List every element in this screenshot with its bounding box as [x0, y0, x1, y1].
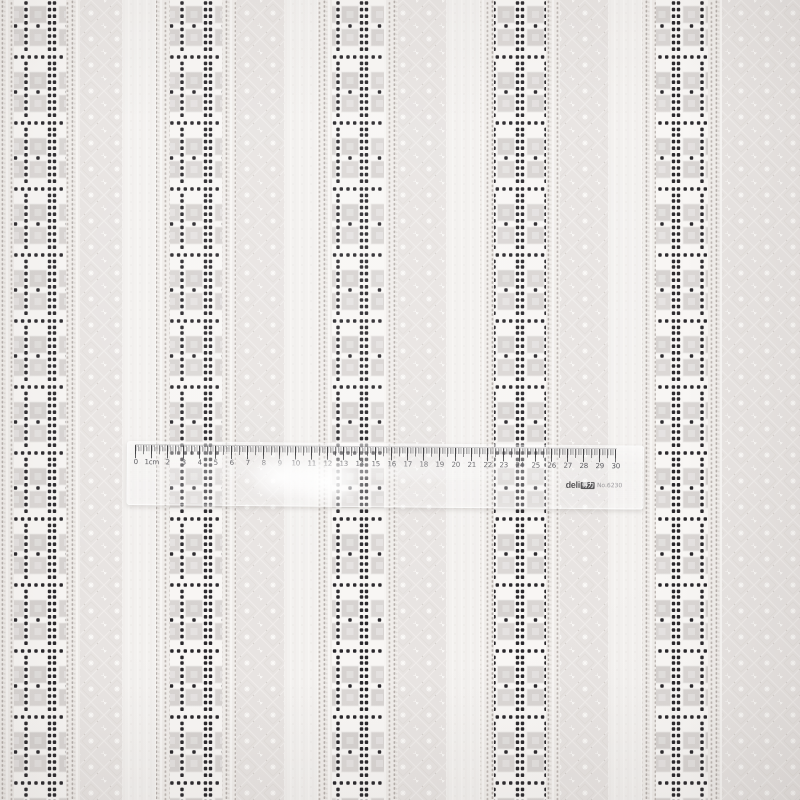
ruler-number: 0	[134, 458, 138, 466]
stitch-ladder-strip	[642, 0, 656, 800]
ruler-number: 22	[484, 461, 493, 469]
ruler-number: 14	[356, 460, 365, 468]
stitch-ladder-strip	[546, 0, 560, 800]
ruler-number: 8	[262, 459, 266, 467]
stitch-ladder-strip	[384, 0, 398, 800]
ruler-number: 10	[292, 459, 301, 467]
ruler-number: 16	[388, 460, 397, 468]
ruler-number: 28	[580, 462, 589, 470]
ruler-number: 7	[246, 459, 250, 467]
satin-bright-stripe	[446, 0, 480, 800]
ruler-number: 3	[182, 458, 186, 466]
ruler-number: 20	[452, 461, 461, 469]
stitch-ladder-strip	[222, 0, 236, 800]
ruler-number: 27	[564, 462, 573, 470]
ruler-number: 23	[500, 461, 509, 469]
deli-logo: deli	[566, 480, 580, 490]
ruler-number: 18	[420, 461, 429, 469]
ruler-number: 1cm	[145, 458, 160, 466]
stitch-ladder-strip	[480, 0, 494, 800]
ruler-number: 29	[596, 462, 605, 470]
ruler-brand: deli 得力 No.6230	[566, 480, 623, 490]
eyelet-band-stripe	[170, 0, 222, 800]
eyelet-fabric	[0, 0, 800, 800]
ruler-number: 25	[532, 462, 541, 470]
satin-bright-stripe	[284, 0, 318, 800]
ruler-number: 30	[612, 462, 621, 470]
ruler-model-number: No.6230	[597, 482, 622, 489]
eyelet-band-stripe	[332, 0, 384, 800]
ruler-number: 12	[324, 460, 333, 468]
deli-cn-logo: 得力	[581, 481, 595, 488]
stitch-ladder-strip	[156, 0, 170, 800]
eyelet-band-stripe	[656, 0, 708, 800]
ruler-number: 21	[468, 461, 477, 469]
ruler-number: 17	[404, 460, 413, 468]
satin-bright-stripe	[608, 0, 642, 800]
ruler-number: 11	[308, 460, 317, 468]
stitch-ladder-strip	[66, 0, 80, 800]
stitch-ladder-strip	[318, 0, 332, 800]
ruler-number: 4	[198, 459, 202, 467]
ruler: 01cm234567891011121314151617181920212223…	[126, 441, 644, 510]
stitch-ladder-strip	[708, 0, 722, 800]
satin-bright-stripe	[122, 0, 156, 800]
eyelet-band-stripe	[14, 0, 66, 800]
ruler-number: 9	[278, 459, 282, 467]
ruler-number: 13	[340, 460, 349, 468]
stitch-ladder-strip	[0, 0, 14, 800]
ruler-number: 5	[214, 459, 218, 467]
eyelet-band-stripe	[494, 0, 546, 800]
ruler-number: 26	[548, 462, 557, 470]
ruler-number: 2	[166, 458, 170, 466]
ruler-number: 24	[516, 461, 525, 469]
ruler-number: 15	[372, 460, 381, 468]
ruler-number: 6	[230, 459, 234, 467]
ruler-number: 19	[436, 461, 445, 469]
fabric-photo: 01cm234567891011121314151617181920212223…	[0, 0, 800, 800]
